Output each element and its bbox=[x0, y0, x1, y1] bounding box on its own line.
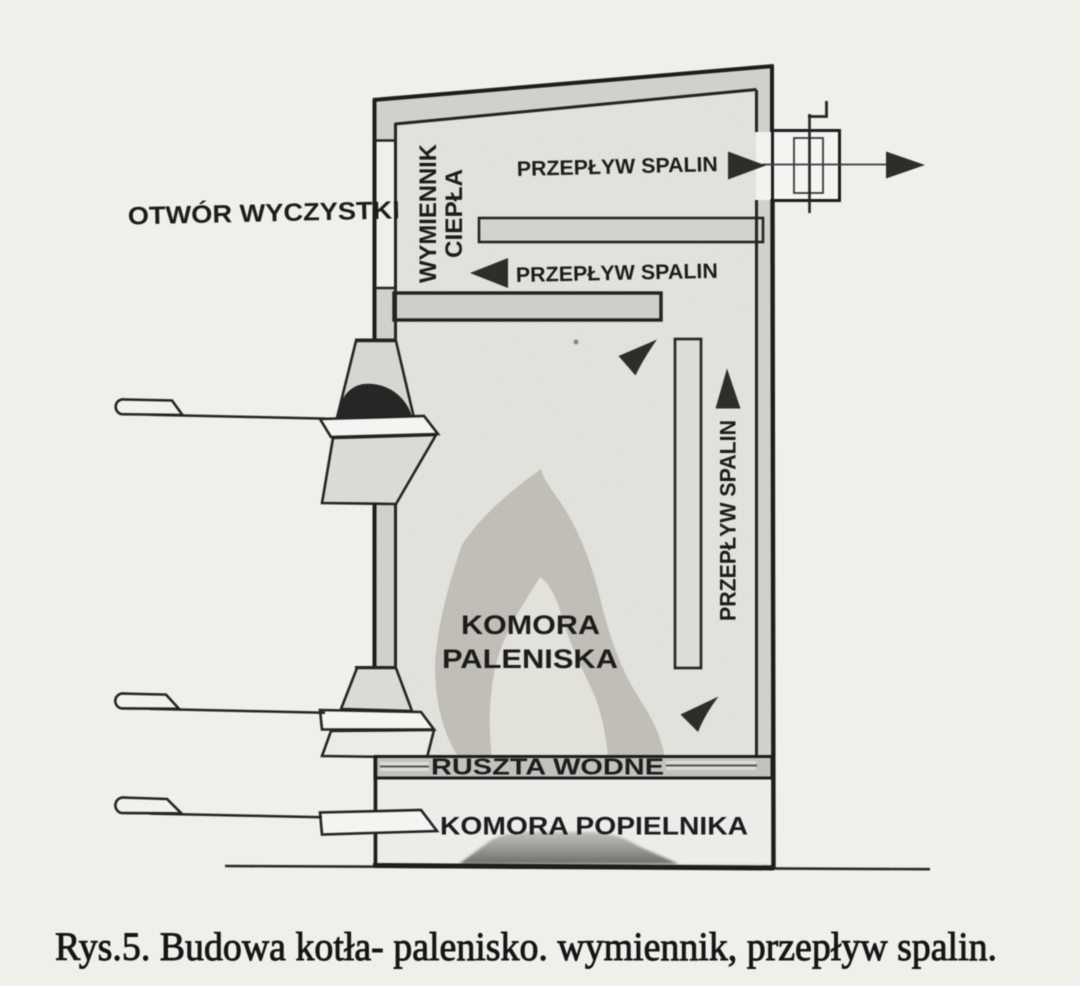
svg-text:PRZEPŁYW SPALIN: PRZEPŁYW SPALIN bbox=[516, 260, 718, 287]
svg-text:WYMIENNIK: WYMIENNIK bbox=[415, 143, 442, 283]
svg-text:Rys.5. Budowa kotła- palenisko: Rys.5. Budowa kotła- palenisko. wymienni… bbox=[55, 924, 997, 969]
svg-text:KOMORA POPIELNIKA: KOMORA POPIELNIKA bbox=[440, 813, 748, 841]
svg-text:KOMORA: KOMORA bbox=[461, 610, 600, 640]
svg-text:PALENISKA: PALENISKA bbox=[442, 644, 618, 674]
svg-text:RUSZTA WODNE: RUSZTA WODNE bbox=[431, 754, 664, 780]
svg-text:PRZEPŁYW SPALIN: PRZEPŁYW SPALIN bbox=[517, 153, 719, 181]
svg-text:PRZEPŁYW SPALIN: PRZEPŁYW SPALIN bbox=[716, 420, 741, 621]
svg-text:CIEPŁA: CIEPŁA bbox=[441, 169, 468, 258]
